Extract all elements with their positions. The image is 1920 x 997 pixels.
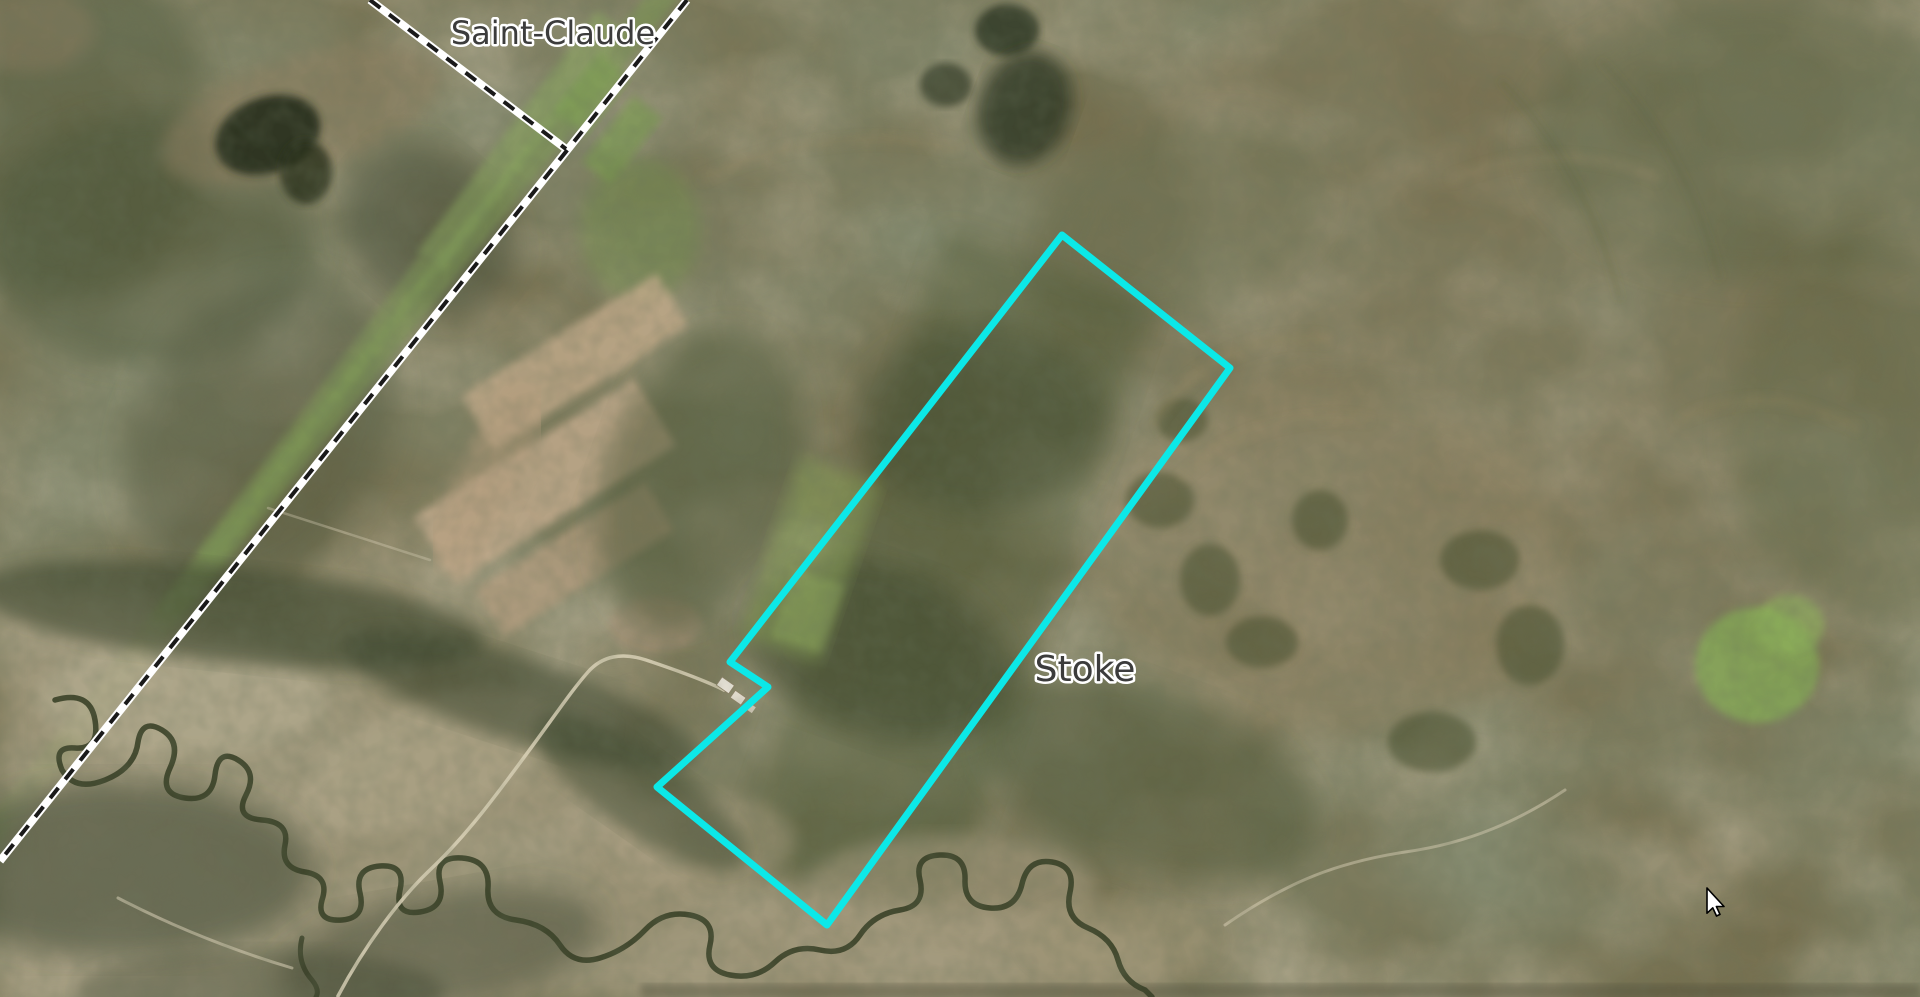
- map-label-stoke: Stoke: [1035, 649, 1136, 690]
- map-label-saint-claude: Saint-Claude: [451, 14, 655, 52]
- satellite-map-viewport: Saint-Claude Stoke: [0, 0, 1920, 997]
- satellite-map-canvas[interactable]: Saint-Claude Stoke: [0, 0, 1920, 997]
